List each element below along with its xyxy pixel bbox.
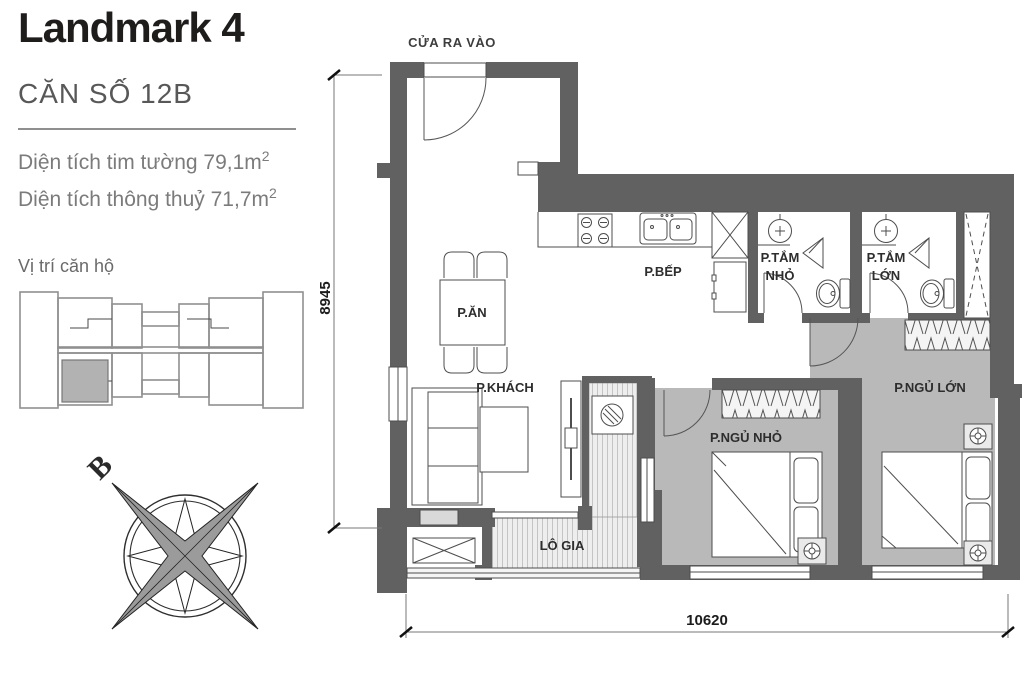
kitchen-label: P.BẾP — [644, 264, 682, 279]
bath-small-label-1: P.TẮM — [761, 250, 800, 265]
stove-icon — [578, 214, 612, 247]
kitchen-fixtures — [538, 212, 748, 312]
living-label: P.KHÁCH — [476, 380, 534, 395]
fridge-icon — [712, 262, 746, 312]
bedroom-large-label: P.NGỦ LỚN — [894, 380, 966, 395]
bath-large-label-1: P.TẮM — [867, 250, 906, 265]
wardrobe-large-icon — [905, 320, 990, 350]
wardrobe-small-icon — [722, 390, 820, 418]
dining-label: P.ĂN — [457, 305, 486, 320]
washing-machine-icon — [592, 396, 633, 434]
ac-unit-icon — [413, 538, 475, 563]
dimension-vertical: 8945 — [317, 281, 334, 314]
sink-icon — [640, 213, 696, 244]
shower-small-icon — [803, 238, 823, 268]
coffee-table-icon — [480, 407, 528, 472]
entry-door-opening — [424, 63, 486, 77]
washbasin-large-icon — [862, 214, 898, 245]
nightstand-large-bottom-icon — [964, 541, 992, 565]
entrance-label: CỬA RA VÀO — [408, 35, 496, 50]
toilet-large-icon — [921, 279, 955, 308]
bathroom-fixtures — [758, 212, 990, 318]
washbasin-small-icon — [758, 214, 792, 245]
loggia-label: LÔ GIA — [540, 538, 585, 553]
tv-console-icon — [561, 381, 581, 497]
bed-large-icon — [882, 452, 992, 548]
closet-icon — [964, 212, 990, 318]
nightstand-small-icon — [798, 538, 826, 564]
floor-plan: CỬA RA VÀO P.ĂN P.BẾP P.KHÁCH P.TẮM NHỎ … — [0, 0, 1024, 683]
shower-large-icon — [909, 238, 929, 268]
toilet-small-icon — [817, 279, 851, 308]
bath-small-label-2: NHỎ — [766, 268, 795, 283]
sofa-icon — [412, 388, 482, 505]
nightstand-large-top-icon — [964, 424, 992, 449]
shaft-icon — [712, 212, 748, 258]
dimension-horizontal: 10620 — [686, 612, 728, 629]
bath-large-label-2: LỚN — [872, 268, 900, 283]
bedroom-small-label: P.NGỦ NHỎ — [710, 430, 782, 445]
